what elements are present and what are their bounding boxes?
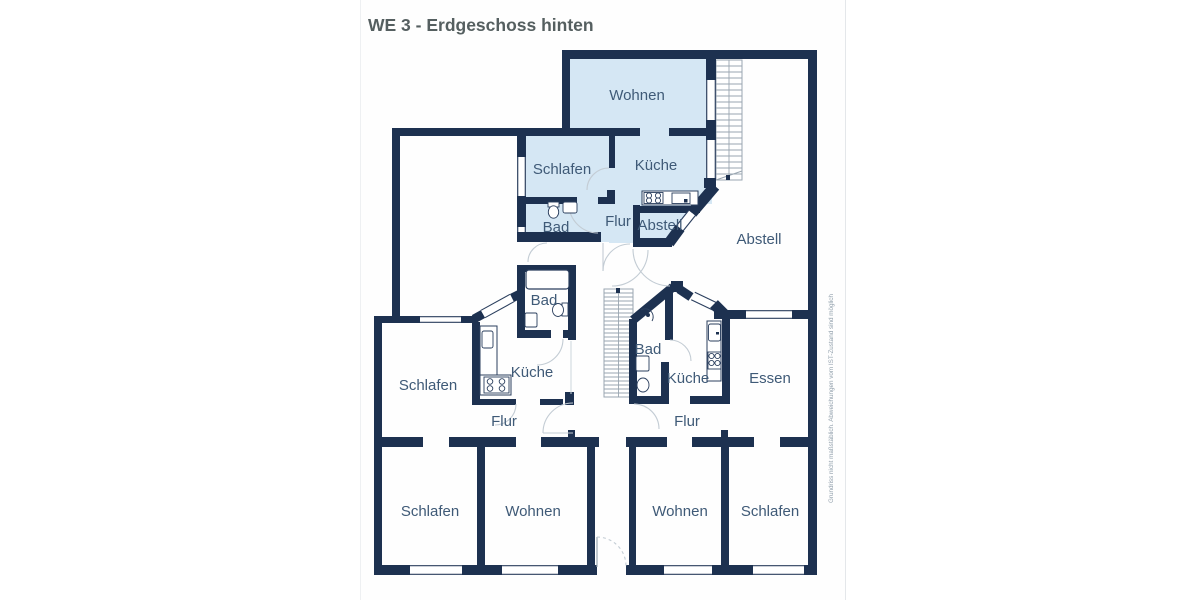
svg-text:Flur: Flur [605, 213, 631, 230]
svg-text:Wohnen: Wohnen [505, 503, 561, 520]
svg-text:Flur: Flur [674, 413, 700, 430]
svg-text:Wohnen: Wohnen [652, 503, 708, 520]
svg-text:Abstell: Abstell [736, 231, 781, 248]
svg-text:Bad: Bad [531, 292, 558, 309]
svg-text:Essen: Essen [749, 370, 791, 387]
svg-text:Küche: Küche [511, 364, 554, 381]
svg-text:Schlafen: Schlafen [401, 503, 459, 520]
svg-text:Schlafen: Schlafen [741, 503, 799, 520]
svg-text:Bad: Bad [543, 219, 570, 236]
svg-text:Grundriss nicht maßstäblich. A: Grundriss nicht maßstäblich. Abweichunge… [828, 294, 835, 503]
svg-text:Flur: Flur [491, 413, 517, 430]
svg-text:WE 3 - Erdgeschoss hinten: WE 3 - Erdgeschoss hinten [368, 15, 594, 35]
svg-text:Abstell: Abstell [637, 217, 682, 234]
svg-text:Bad: Bad [635, 341, 662, 358]
svg-text:Wohnen: Wohnen [609, 87, 665, 104]
svg-text:Küche: Küche [667, 370, 710, 387]
svg-text:Schlafen: Schlafen [399, 377, 457, 394]
svg-text:Schlafen: Schlafen [533, 161, 591, 178]
svg-text:Küche: Küche [635, 157, 678, 174]
